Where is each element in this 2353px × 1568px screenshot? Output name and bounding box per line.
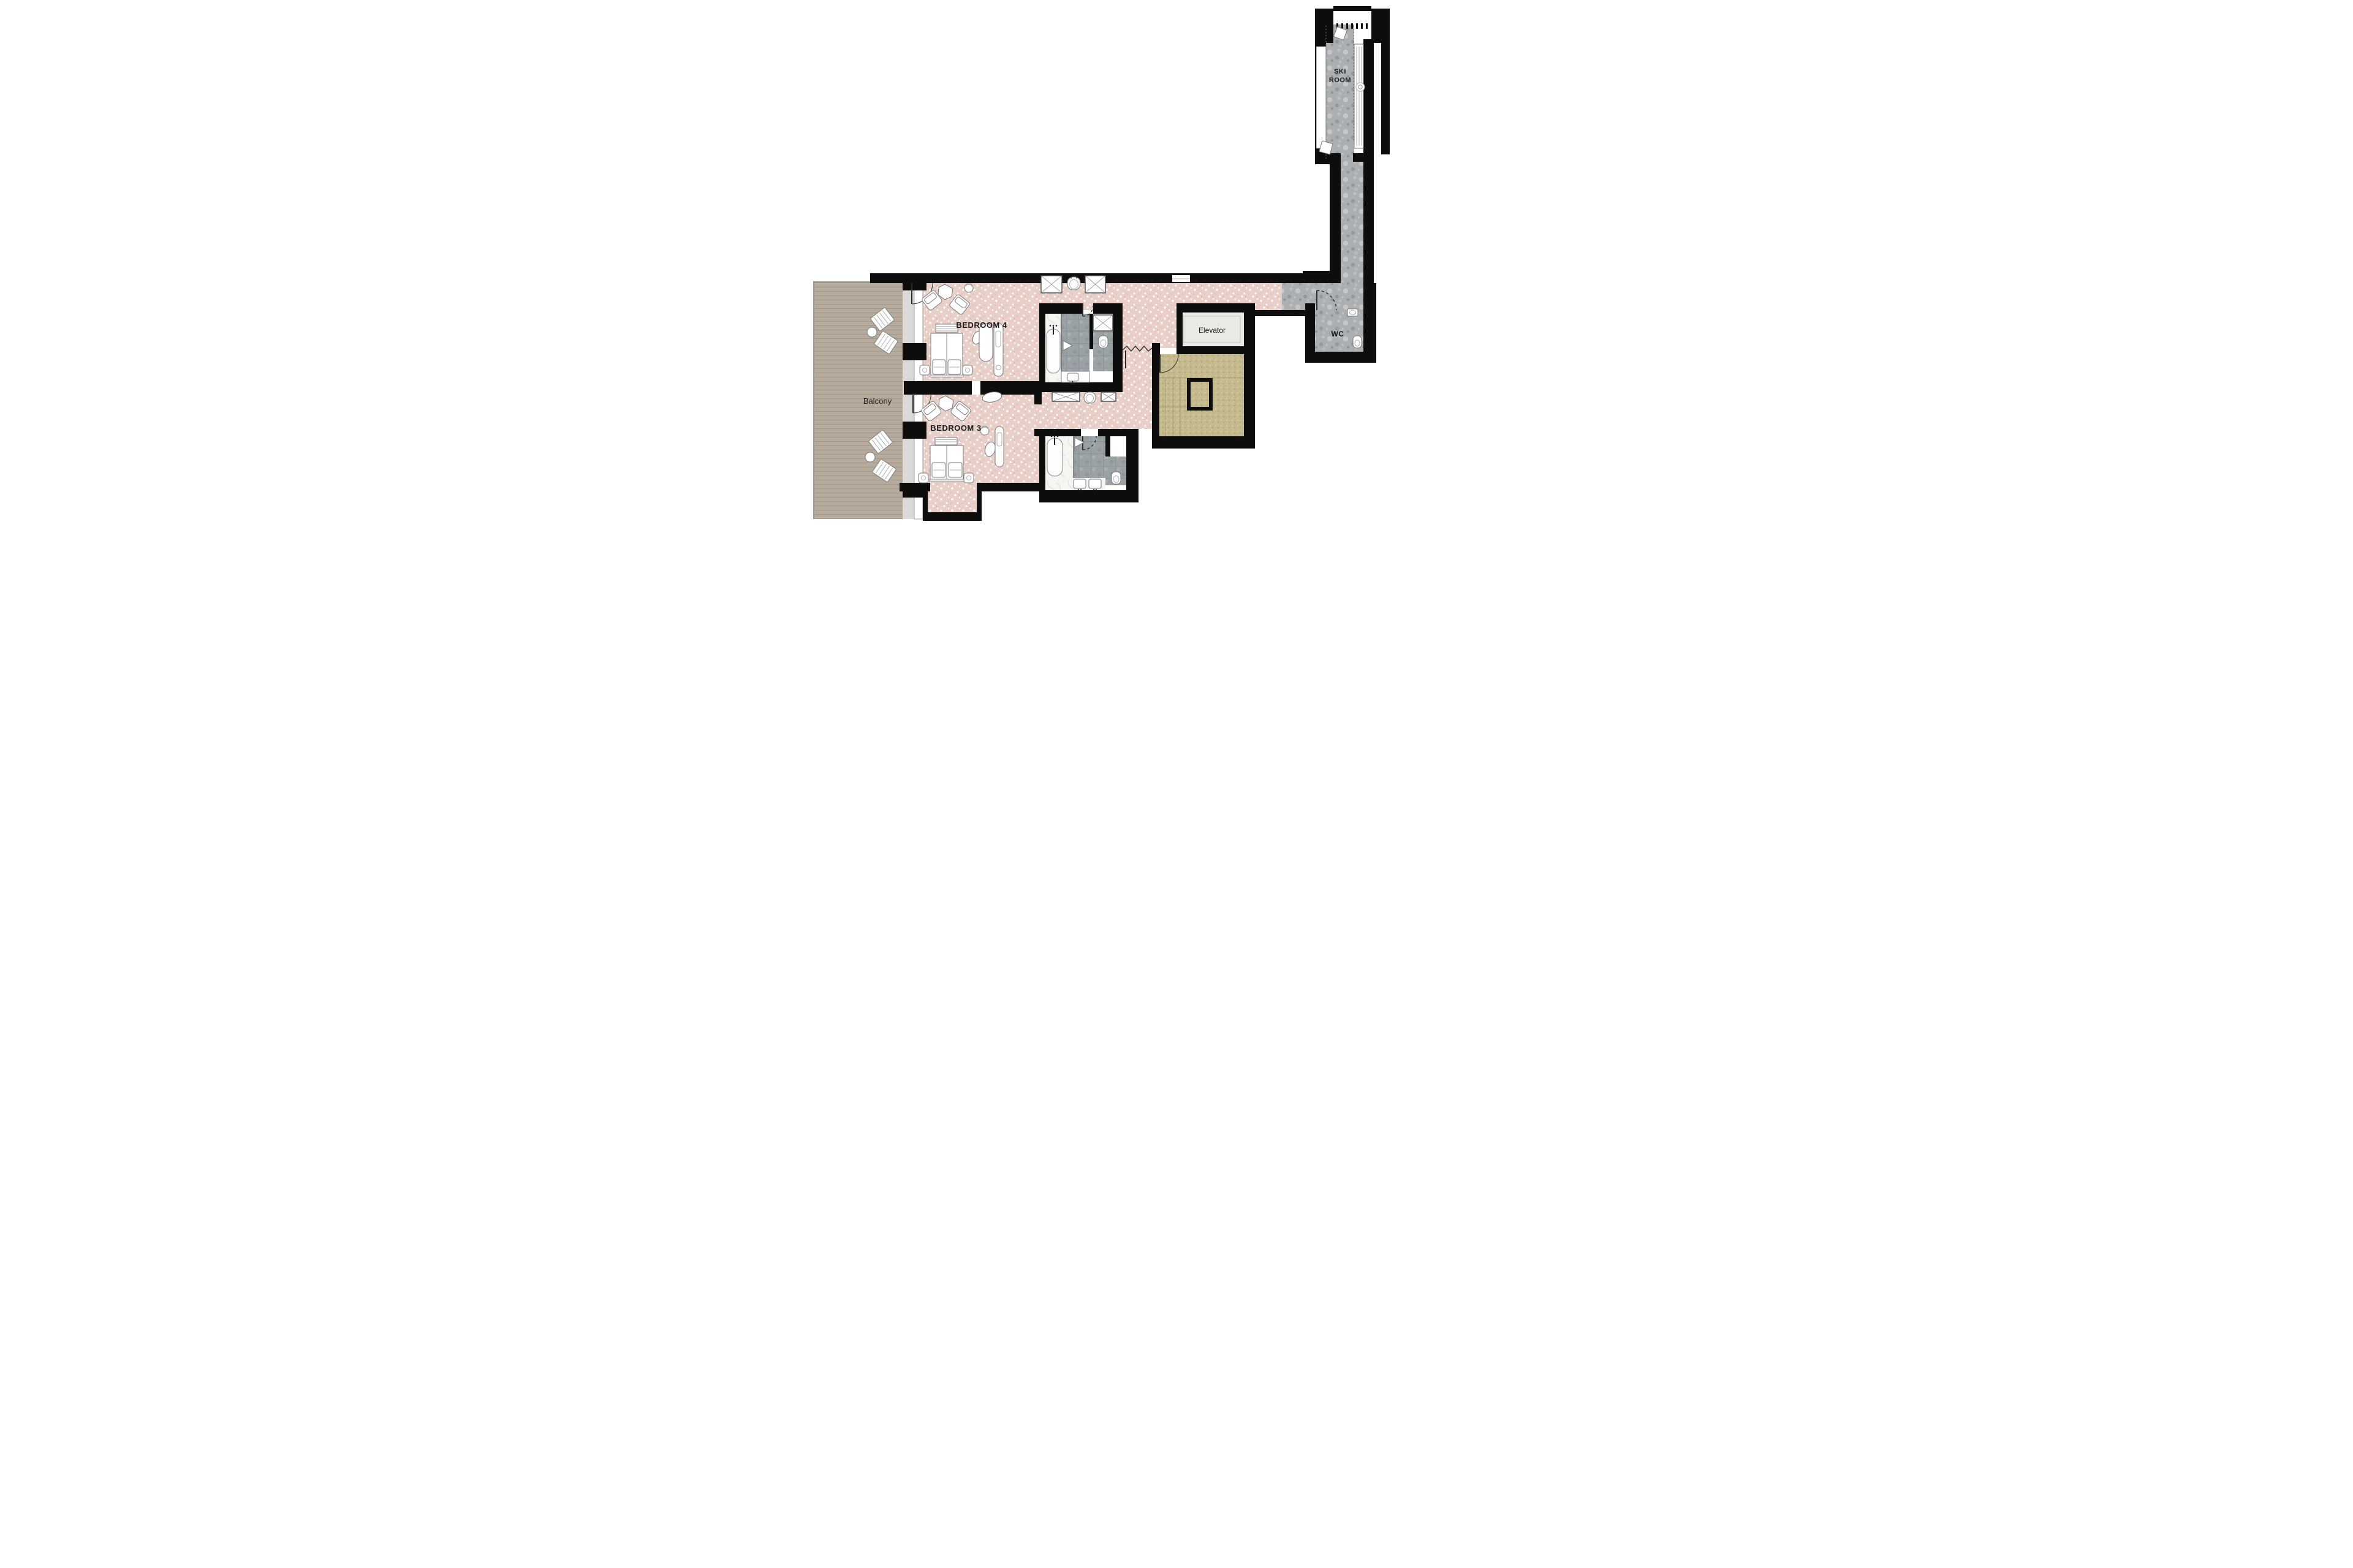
wall	[1353, 153, 1363, 162]
wall	[1039, 382, 1123, 392]
wall	[1034, 395, 1042, 404]
ski-room-label-line2: ROOM	[1329, 77, 1351, 84]
wall	[1039, 306, 1045, 392]
wall	[903, 422, 926, 439]
wall	[1333, 6, 1371, 11]
wall	[903, 343, 926, 360]
ski-bench	[1316, 47, 1326, 148]
elevator-label: Elevator	[1199, 326, 1226, 335]
round-stool	[980, 426, 989, 435]
corridor-floor	[1341, 153, 1363, 283]
wall	[1315, 9, 1333, 43]
wall	[923, 483, 928, 512]
ski-stool	[1319, 141, 1333, 154]
wall	[1039, 303, 1083, 314]
wall	[1363, 39, 1374, 283]
wall	[977, 483, 1044, 491]
bed-bench	[935, 437, 957, 445]
headboard	[930, 375, 963, 377]
closet	[1041, 276, 1062, 293]
ski-bench	[1354, 44, 1363, 148]
nightstand	[920, 365, 930, 375]
round-stool	[964, 284, 973, 292]
wall	[903, 283, 926, 290]
wall	[1152, 343, 1160, 354]
bed-bench	[936, 324, 958, 332]
sink	[1084, 392, 1096, 403]
sink	[1347, 309, 1358, 316]
desk	[994, 324, 1003, 376]
wall	[1176, 303, 1255, 312]
wall	[1315, 153, 1341, 164]
floors	[813, 25, 1363, 519]
nightstand	[964, 473, 974, 483]
boot-dryer	[1356, 83, 1365, 91]
wall	[1303, 271, 1341, 283]
bedroom-4-label: BEDROOM 4	[956, 320, 1007, 330]
floor-plan: SKI ROOM WC Elevator Balcony BEDROOM 4 B…	[784, 0, 1569, 523]
toilet	[1112, 472, 1121, 484]
landing-floor	[1282, 283, 1363, 310]
closet	[1093, 315, 1113, 331]
wall	[1152, 436, 1255, 449]
closet	[1085, 276, 1105, 293]
balcony-label: Balcony	[863, 396, 892, 406]
wc-label: WC	[1332, 330, 1344, 338]
wall	[1244, 303, 1255, 449]
bathtub	[1047, 325, 1060, 373]
wall	[1113, 303, 1123, 392]
floor-plan-canvas: SKI ROOM WC Elevator Balcony BEDROOM 4 B…	[784, 0, 1569, 523]
headboard	[930, 479, 964, 482]
ski-entry-vestibule	[1333, 11, 1371, 25]
wall	[1039, 490, 1139, 502]
toilet	[1353, 336, 1362, 348]
wall	[1363, 283, 1376, 363]
wall	[1152, 343, 1159, 449]
nightstand	[919, 473, 928, 483]
bathtub	[1047, 436, 1063, 476]
wall	[1089, 314, 1093, 349]
closet	[1101, 392, 1116, 401]
wall	[923, 512, 982, 521]
wall	[1039, 436, 1045, 490]
bedroom-3-label: BEDROOM 3	[930, 423, 981, 433]
sink	[1067, 277, 1080, 290]
wall	[1098, 429, 1139, 436]
wall	[1105, 436, 1110, 456]
entry-hall-floor-south	[1123, 310, 1176, 348]
wall	[1381, 37, 1390, 154]
nightstand	[963, 365, 972, 375]
stair-void-inner	[1191, 382, 1209, 407]
wall	[1176, 346, 1244, 354]
desk	[995, 426, 1004, 467]
bedroom-3-bed-nook-floor	[928, 484, 977, 512]
side-table	[865, 452, 875, 462]
wall	[1248, 310, 1305, 316]
ski-room-floor	[1326, 25, 1354, 161]
side-table	[867, 327, 877, 337]
closet	[1052, 392, 1080, 401]
toilet	[1099, 336, 1108, 348]
wall	[1330, 164, 1341, 283]
wall	[904, 381, 972, 395]
ski-room-label-line1: SKI	[1334, 68, 1346, 75]
wall	[1034, 429, 1081, 436]
